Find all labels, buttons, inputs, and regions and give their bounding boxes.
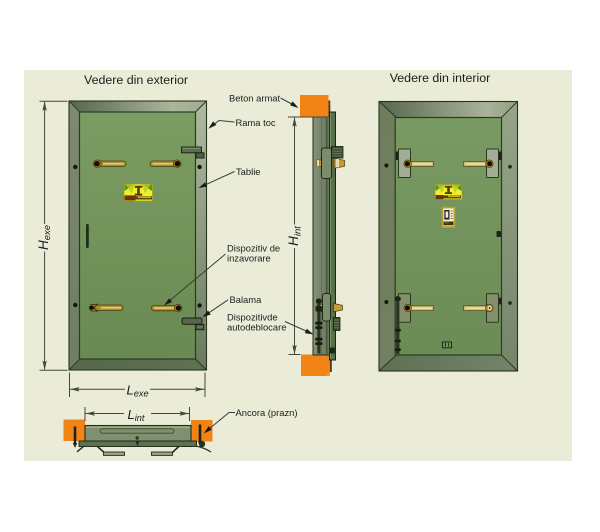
svg-text:Tablie: Tablie [236,166,261,177]
svg-text:Vedere din exterior: Vedere din exterior [84,73,188,87]
svg-text:autodeblocare: autodeblocare [227,322,286,333]
svg-text:Rama toc: Rama toc [236,117,276,128]
svg-text:inzavorare: inzavorare [227,253,271,264]
svg-text:Ancora (prazn): Ancora (prazn) [236,407,298,418]
svg-text:Balama: Balama [230,294,263,305]
svg-text:Beton armat: Beton armat [229,93,280,104]
svg-text:Vedere din interior: Vedere din interior [390,71,491,85]
